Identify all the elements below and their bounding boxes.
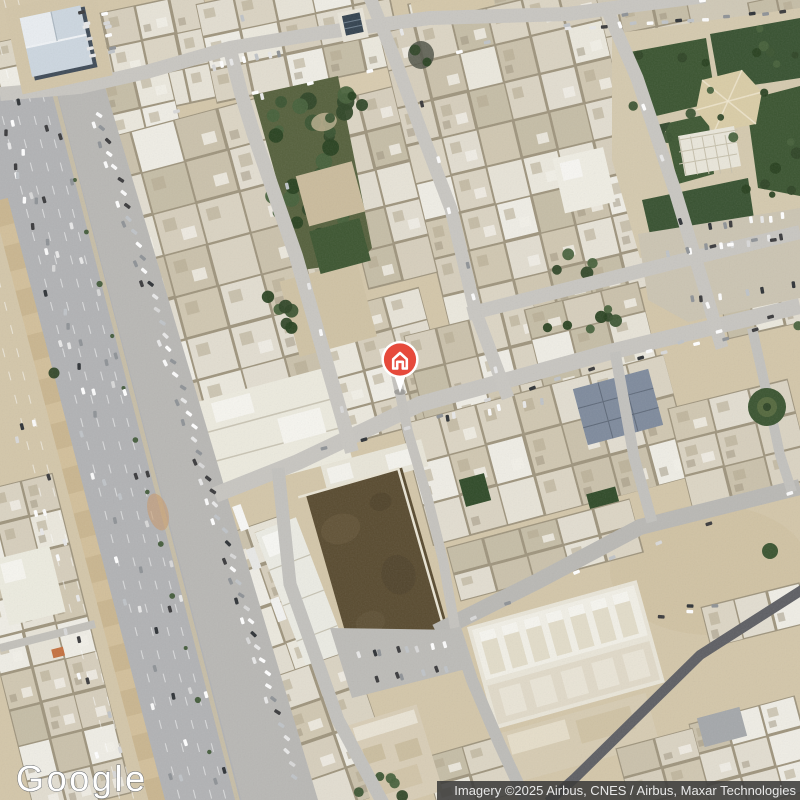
svg-text:Google: Google (16, 758, 148, 799)
svg-text:Imagery ©2025 Airbus, CNES / A: Imagery ©2025 Airbus, CNES / Airbus, Max… (454, 783, 796, 798)
